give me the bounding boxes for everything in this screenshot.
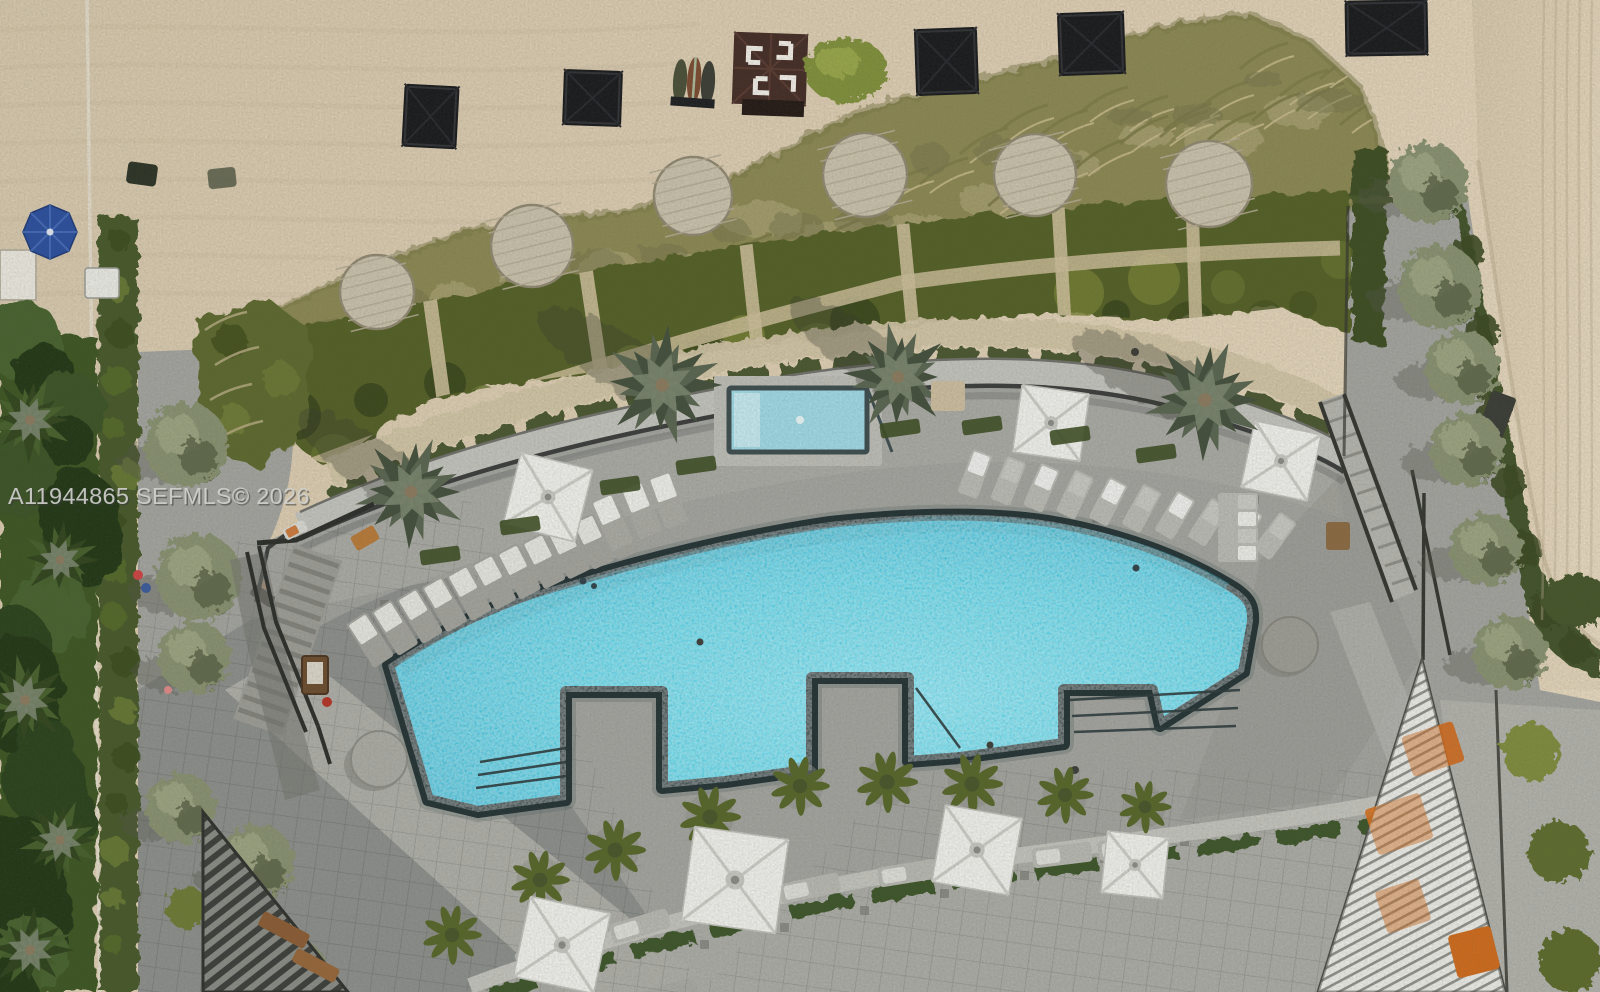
svg-text:A11944865 SEFMLS© 2026: A11944865 SEFMLS© 2026	[8, 483, 310, 509]
